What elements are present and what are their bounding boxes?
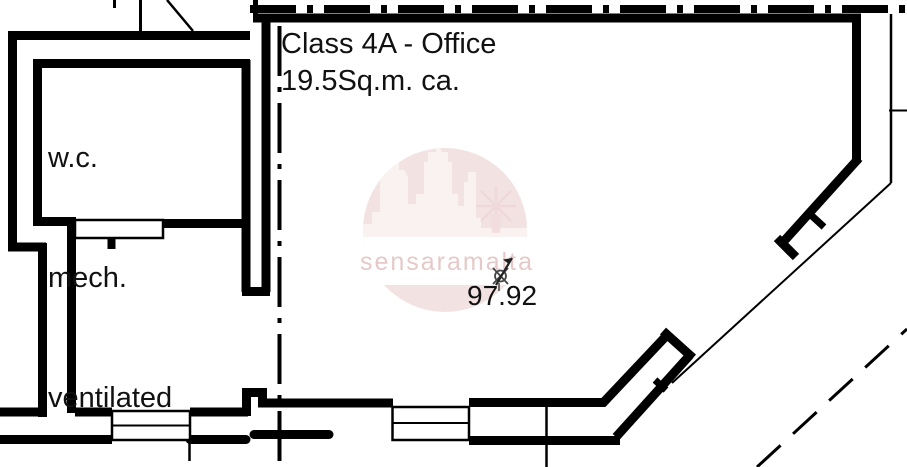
- wc-room-label: w.c. mech. ventilated: [48, 58, 172, 467]
- windmill-tower: [490, 214, 502, 233]
- level-value: 97.92: [467, 280, 537, 312]
- office-area-label: 19.5Sq.m. ca.: [281, 63, 460, 100]
- glazing-line-diagonal: [672, 183, 891, 383]
- office-class-label: Class 4A - Office: [281, 26, 496, 63]
- wc-room-label-line3: ventilated: [48, 378, 172, 418]
- floor-plan: sensaramalta: [0, 0, 907, 467]
- wc-room-label-line1: w.c.: [48, 138, 172, 178]
- wc-room-label-line2: mech.: [48, 258, 172, 298]
- stair-diagonal: [167, 0, 193, 31]
- site-dashed-diagonal: [757, 329, 907, 467]
